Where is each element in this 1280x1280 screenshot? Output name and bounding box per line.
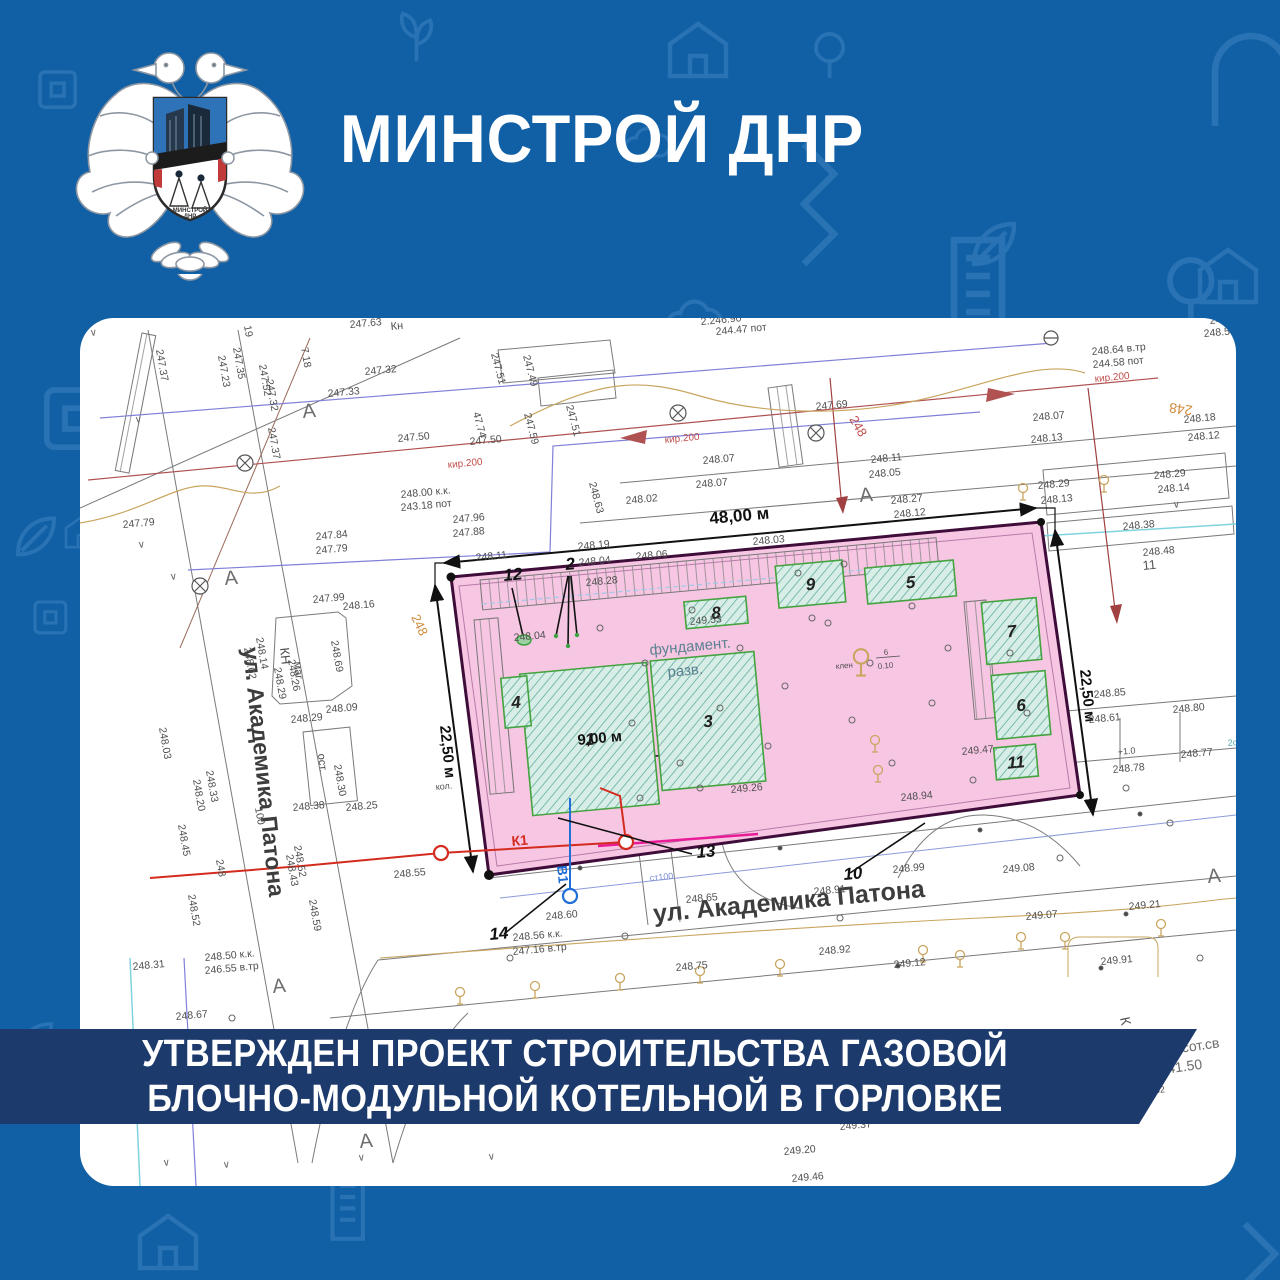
- map-label: 7.18: [298, 346, 313, 368]
- map-label: 248.07: [695, 476, 728, 491]
- map-label: В1: [554, 865, 572, 885]
- map-label: 248.29: [1037, 477, 1070, 492]
- map-label: 247.49: [520, 354, 540, 388]
- map-label: кир.200: [447, 457, 483, 471]
- map-label: 100: [252, 806, 267, 825]
- map-label: 248.99: [892, 861, 925, 876]
- map-label: 247.96: [452, 511, 485, 526]
- map-label: К: [1117, 1015, 1135, 1027]
- map-label: 2ст100: [1227, 735, 1236, 748]
- map-label: 247.63: [349, 318, 382, 331]
- map-label: 248.27: [890, 492, 923, 507]
- building-footprint: 4: [501, 676, 532, 728]
- map-label: 248.16: [342, 598, 375, 613]
- map-label: 249.12: [893, 956, 926, 971]
- map-label: ∨: [162, 1157, 170, 1169]
- map-label: 248: [846, 413, 870, 439]
- map-label: А: [1206, 865, 1222, 888]
- map-label: 248.29: [1153, 467, 1186, 482]
- map-label: 12: [503, 564, 524, 585]
- map-label: 19: [241, 324, 255, 338]
- map-label: 249.08: [1002, 861, 1035, 876]
- map-label: 248.67: [175, 1008, 208, 1023]
- map-label: 247.51: [563, 404, 583, 438]
- map-label: 249.46: [791, 1170, 824, 1185]
- minstroy-dnr-emblem: МИНСТРОЙ ДНР: [70, 6, 310, 306]
- map-label: 248.29: [271, 666, 288, 700]
- map-label: 248.53 в.тр: [1203, 323, 1236, 340]
- map-label: 248.20: [190, 778, 207, 812]
- map-label: 248.60: [545, 908, 578, 923]
- banner-line-2: БЛОЧНО-МОДУЛЬНОЙ КОТЕЛЬНОЙ В ГОРЛОВКЕ: [58, 1077, 1093, 1122]
- map-label: 247.79: [315, 542, 348, 557]
- map-label: 248.09: [325, 701, 358, 716]
- map-label: 248.11: [870, 451, 902, 466]
- map-label: 0.10: [877, 661, 894, 671]
- map-label: 249.91: [1100, 953, 1133, 968]
- map-label: 249.21: [1128, 898, 1161, 913]
- map-label: кир.200: [664, 432, 700, 446]
- map-label: 248: [213, 858, 228, 877]
- map-label: Кн: [390, 320, 404, 333]
- map-label: 248.77: [1180, 746, 1213, 761]
- map-label: ∨: [1172, 499, 1180, 511]
- map-label: 248.13: [1030, 431, 1063, 446]
- map-label: 248.45: [175, 823, 192, 857]
- map-label: 248.61: [1088, 711, 1121, 726]
- map-label: 248.38: [292, 799, 325, 814]
- map-label: 48,00 м: [709, 504, 770, 528]
- building-number: 11: [1006, 752, 1025, 773]
- map-label: ∨: [169, 571, 177, 583]
- map-label: А: [358, 1130, 374, 1153]
- map-label: 248.19: [577, 538, 610, 553]
- map-label: клен: [835, 660, 853, 671]
- map-label: ∨: [89, 327, 97, 339]
- shield-text-2: ДНР: [184, 214, 197, 220]
- map-label: 248.48: [1142, 544, 1175, 559]
- map-label: ∨: [357, 1152, 365, 1164]
- map-label: 248.07: [702, 452, 735, 467]
- map-label: А: [858, 484, 874, 507]
- eagle-tail: [149, 238, 232, 280]
- map-label: 13: [696, 841, 717, 862]
- map-label: 248.52: [185, 893, 202, 927]
- map-label: 249.07: [1025, 908, 1058, 923]
- map-label: 247.84: [315, 528, 348, 543]
- building-footprint: 9: [775, 560, 846, 608]
- map-label: ∨: [134, 414, 142, 426]
- map-label: 248.69: [328, 639, 345, 673]
- map-label: ∨: [222, 1159, 230, 1171]
- map-label: 248.18: [1183, 411, 1216, 426]
- map-label: ст100: [649, 871, 673, 883]
- map-label: 248.63: [586, 481, 606, 515]
- map-label: 247.99: [312, 591, 345, 606]
- map-label: К1: [511, 832, 529, 849]
- map-label: 247.35: [230, 346, 247, 380]
- map-label: 247.32: [364, 363, 397, 378]
- shield-text-1: МИНСТРОЙ: [173, 206, 207, 214]
- map-label: 248.14: [1157, 481, 1190, 496]
- banner-line-1: УТВЕРЖДЕН ПРОЕКТ СТРОИТЕЛЬСТВА ГАЗОВОЙ: [58, 1032, 1093, 1077]
- map-label: 10: [843, 863, 864, 884]
- map-label: ∨: [137, 539, 145, 551]
- map-label: кол.: [435, 781, 452, 792]
- map-label: 248.59: [306, 898, 323, 932]
- map-label: 247.50: [397, 430, 430, 445]
- map-label: ост.: [315, 753, 329, 773]
- map-label: 248.80: [1172, 701, 1205, 716]
- map-label: 248.29: [290, 711, 323, 726]
- map-label: 248.30: [331, 763, 348, 797]
- map-label: 2: [564, 554, 577, 574]
- map-label: 248.38: [1122, 518, 1155, 533]
- map-label: 248.78: [1112, 761, 1145, 776]
- map-label: 247.37: [153, 348, 170, 382]
- building-footprint: 11: [994, 744, 1039, 780]
- map-label: 248.02: [625, 492, 658, 507]
- map-label: 14: [489, 923, 510, 944]
- map-label: 248.12: [1187, 429, 1220, 444]
- map-label: 248.55: [393, 866, 426, 881]
- map-label: +1.0: [1117, 745, 1136, 757]
- map-label: 248.11: [475, 549, 507, 564]
- map-label: 248.85: [1093, 686, 1126, 701]
- map-label: 248.05: [868, 466, 901, 481]
- map-label: 248.07: [1032, 409, 1065, 424]
- map-label: 249.20: [783, 1143, 816, 1158]
- map-label: 247.51: [488, 352, 508, 386]
- map-label: 247.16 в.тр: [512, 941, 567, 958]
- announcement-banner: УТВЕРЖДЕН ПРОЕКТ СТРОИТЕЛЬСТВА ГАЗОВОЙ Б…: [0, 1029, 1197, 1124]
- map-label: 247.79: [122, 516, 155, 531]
- map-label: 248: [408, 612, 431, 638]
- map-label: А: [223, 567, 239, 590]
- building-footprint: 5: [865, 560, 957, 604]
- map-label: 247.88: [452, 525, 485, 540]
- map-label: 247.37: [265, 426, 282, 460]
- page-title: МИНСТРОЙ ДНР: [340, 100, 864, 178]
- map-label: 247.23: [215, 354, 232, 388]
- map-label: 248.31: [132, 958, 165, 973]
- map-label: 248.13: [1040, 492, 1073, 507]
- map-label: 248.75: [675, 959, 708, 974]
- map-label: ∨: [487, 1151, 495, 1163]
- building-footprint: 6: [991, 671, 1051, 740]
- building-footprint: 7: [981, 598, 1041, 665]
- map-label: А: [301, 400, 317, 423]
- map-label: А: [271, 975, 287, 998]
- map-label: кир.200: [1094, 371, 1130, 385]
- map-label: 248.03: [156, 726, 173, 760]
- map-label: 248.25: [345, 799, 378, 814]
- post-image: МИНСТРОЙ ДНР МИНСТРОЙ ДНР: [0, 0, 1280, 1280]
- map-label: 11: [1142, 557, 1157, 573]
- map-label: разв.: [667, 661, 704, 681]
- map-label: 247.59: [521, 412, 541, 446]
- map-label: 248.92: [818, 943, 851, 958]
